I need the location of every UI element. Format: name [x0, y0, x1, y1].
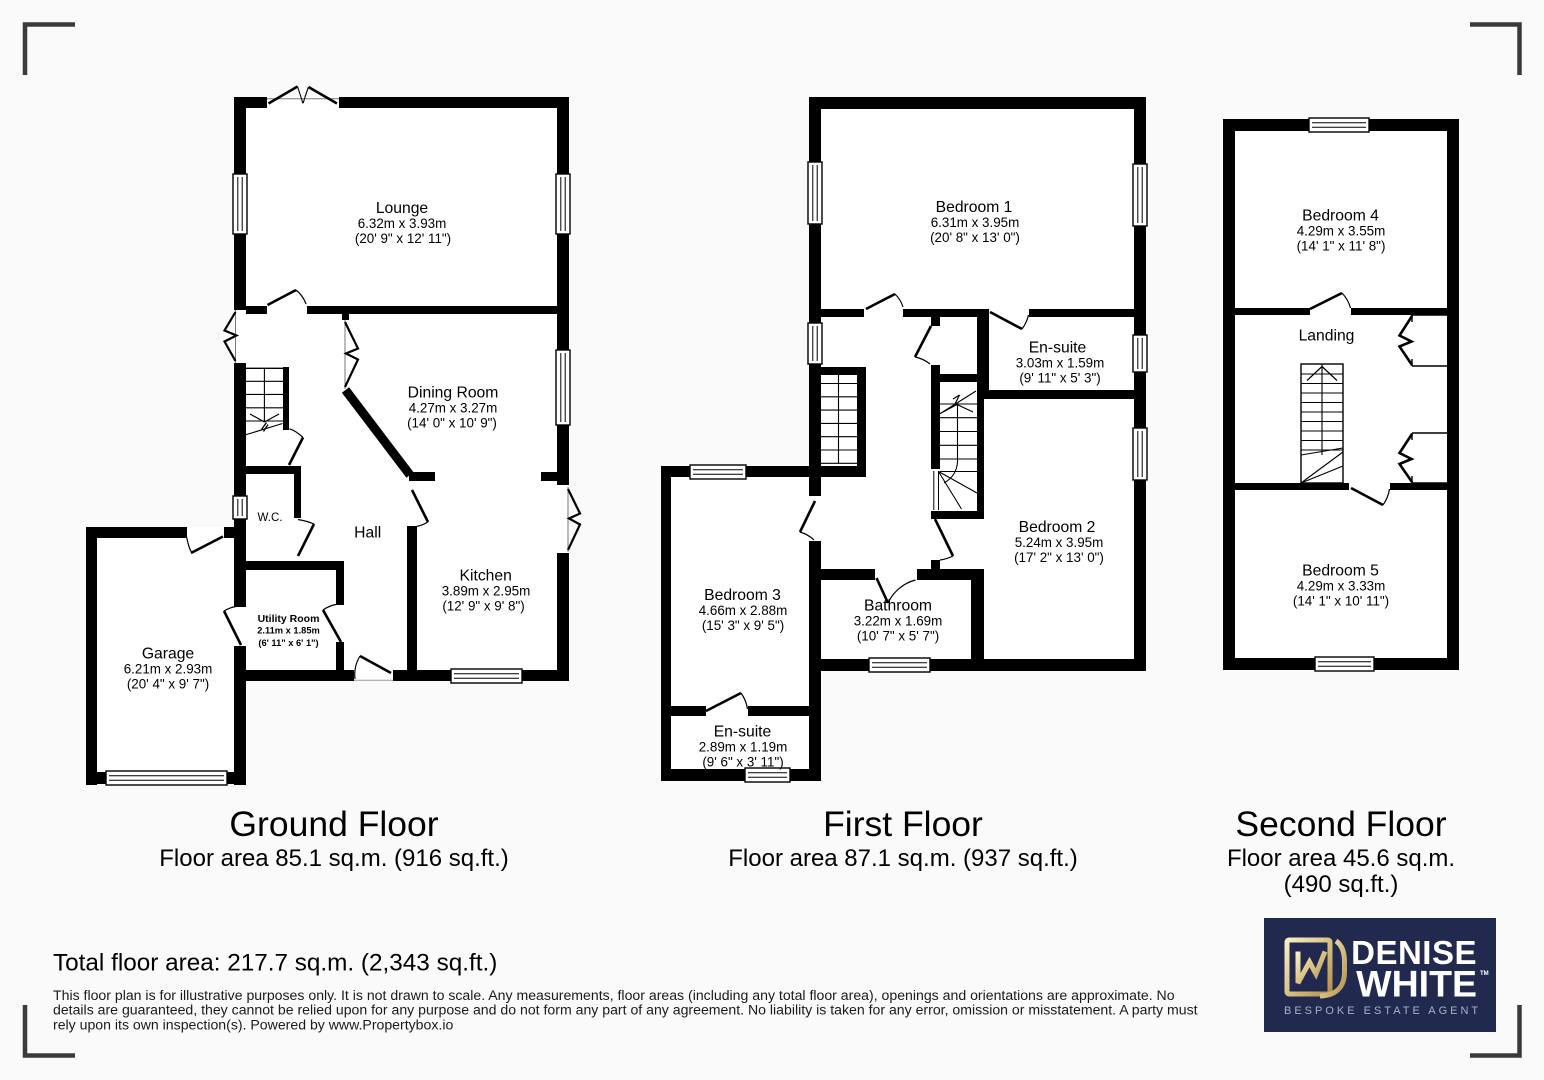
svg-text:(14' 1" x 11' 8"): (14' 1" x 11' 8") [1297, 239, 1386, 254]
svg-text:(6' 11" x 6' 1"): (6' 11" x 6' 1") [258, 638, 318, 648]
svg-text:Garage: Garage [142, 646, 195, 663]
svg-text:(20' 4" x 9' 7"): (20' 4" x 9' 7") [127, 677, 209, 692]
svg-text:(9' 11" x 5' 3"): (9' 11" x 5' 3") [1019, 371, 1100, 386]
svg-text:Lounge: Lounge [376, 200, 429, 217]
svg-text:3.89m x 2.95m: 3.89m x 2.95m [442, 584, 531, 599]
svg-text:(10' 7" x 5' 7"): (10' 7" x 5' 7") [857, 629, 939, 644]
svg-text:(12' 9" x 9' 8"): (12' 9" x 9' 8") [442, 599, 524, 614]
svg-text:(17' 2" x 13' 0"): (17' 2" x 13' 0") [1014, 550, 1104, 565]
svg-text:Total floor area: 217.7 sq.m.: Total floor area: 217.7 sq.m. (2,343 sq.… [53, 950, 497, 977]
svg-text:Bedroom 2: Bedroom 2 [1019, 519, 1096, 536]
svg-text:Ground Floor: Ground Floor [229, 804, 438, 844]
svg-text:(14' 1" x 10' 11"): (14' 1" x 10' 11") [1293, 593, 1389, 608]
svg-text:Bedroom 3: Bedroom 3 [704, 587, 781, 604]
svg-text:5.24m x 3.95m: 5.24m x 3.95m [1015, 535, 1104, 550]
svg-text:Floor area 85.1 sq.m. (916 sq.: Floor area 85.1 sq.m. (916 sq.ft.) [159, 845, 509, 872]
svg-text:2.11m x 1.85m: 2.11m x 1.85m [257, 625, 320, 635]
svg-text:En-suite: En-suite [714, 723, 772, 740]
svg-text:Utility Room: Utility Room [258, 613, 320, 625]
svg-text:3.22m x 1.69m: 3.22m x 1.69m [854, 614, 943, 629]
svg-text:4.29m x 3.55m: 4.29m x 3.55m [1297, 224, 1386, 239]
svg-text:details are guaranteed, they c: details are guaranteed, they cannot be r… [53, 1002, 1198, 1018]
svg-text:En-suite: En-suite [1029, 340, 1087, 357]
svg-text:6.31m x 3.95m: 6.31m x 3.95m [931, 215, 1020, 230]
svg-text:4.66m x 2.88m: 4.66m x 2.88m [699, 603, 788, 618]
svg-text:TM: TM [1480, 971, 1489, 977]
svg-text:Floor area 45.6 sq.m.: Floor area 45.6 sq.m. [1227, 845, 1455, 872]
svg-text:BESPOKE ESTATE AGENT: BESPOKE ESTATE AGENT [1284, 1005, 1481, 1017]
svg-text:W.C.: W.C. [258, 512, 283, 524]
svg-text:(490 sq.ft.): (490 sq.ft.) [1284, 871, 1399, 898]
svg-text:(15' 3" x 9' 5"): (15' 3" x 9' 5") [702, 618, 784, 633]
svg-text:2.89m x 1.19m: 2.89m x 1.19m [699, 739, 788, 754]
svg-text:Bedroom 1: Bedroom 1 [936, 199, 1013, 216]
svg-text:Bedroom 5: Bedroom 5 [1302, 562, 1379, 579]
svg-text:rely upon its own inspection(s: rely upon its own inspection(s). Powered… [53, 1016, 453, 1032]
svg-text:Kitchen: Kitchen [460, 568, 512, 585]
svg-text:Floor area 87.1 sq.m. (937 sq.: Floor area 87.1 sq.m. (937 sq.ft.) [728, 845, 1078, 872]
svg-text:Landing: Landing [1299, 328, 1355, 345]
svg-text:4.27m x 3.27m: 4.27m x 3.27m [409, 401, 498, 416]
svg-text:WHITE: WHITE [1356, 963, 1477, 1005]
svg-text:(20' 8" x 13' 0"): (20' 8" x 13' 0") [930, 230, 1020, 245]
svg-text:3.03m x 1.59m: 3.03m x 1.59m [1016, 356, 1105, 371]
svg-text:Hall: Hall [354, 524, 381, 541]
svg-text:First Floor: First Floor [823, 804, 983, 844]
svg-text:Bedroom 4: Bedroom 4 [1302, 208, 1379, 225]
svg-text:(9' 6" x 3' 11"): (9' 6" x 3' 11") [702, 754, 783, 769]
svg-text:6.21m x 2.93m: 6.21m x 2.93m [124, 662, 213, 677]
svg-text:4.29m x 3.33m: 4.29m x 3.33m [1297, 578, 1386, 593]
svg-text:This floor plan is for illustr: This floor plan is for illustrative purp… [53, 987, 1175, 1003]
svg-text:Bathroom: Bathroom [864, 598, 932, 615]
svg-text:(14' 0" x 10' 9"): (14' 0" x 10' 9") [407, 416, 497, 431]
svg-text:Dining Room: Dining Room [408, 385, 499, 402]
svg-text:Second Floor: Second Floor [1235, 804, 1446, 844]
svg-text:(20' 9" x 12' 11"): (20' 9" x 12' 11") [355, 231, 451, 246]
svg-text:6.32m x 3.93m: 6.32m x 3.93m [358, 216, 447, 231]
